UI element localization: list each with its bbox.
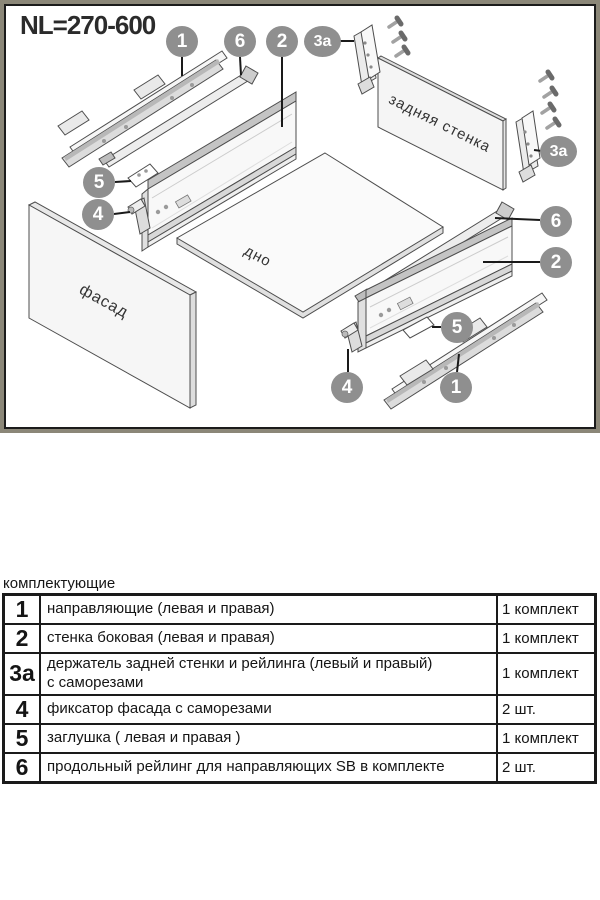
part-description: держатель задней стенки и рейлинга (левы…: [40, 653, 497, 695]
table-row: 4 фиксатор фасада с саморезами 2 шт.: [4, 695, 596, 724]
part-number: 5: [4, 724, 41, 753]
callout-4-left: 4: [82, 199, 114, 230]
components-table-caption: комплектующие: [3, 575, 115, 592]
assembly-diagram-frame: NL=270-600: [0, 0, 600, 433]
callout-6-right: 6: [540, 206, 572, 237]
callout-2-right: 2: [540, 247, 572, 278]
part-number: 4: [4, 695, 41, 724]
back-wall-panel: задняя стенка: [378, 56, 506, 190]
part-description: стенка боковая (левая и правая): [40, 624, 497, 653]
assembly-diagram: NL=270-600: [4, 4, 596, 429]
callout-5-right: 5: [441, 312, 473, 343]
table-row: 2 стенка боковая (левая и правая) 1 комп…: [4, 624, 596, 653]
part-quantity: 2 шт.: [497, 695, 596, 724]
part-quantity: 1 комплект: [497, 624, 596, 653]
page: NL=270-600: [0, 0, 600, 900]
part-number: 1: [4, 595, 41, 625]
part-quantity: 2 шт.: [497, 753, 596, 783]
nominal-length-title: NL=270-600: [20, 10, 155, 41]
table-row: 6 продольный рейлинг для направляющих SB…: [4, 753, 596, 783]
screws-right: [540, 72, 559, 128]
back-wall-holder-left: [354, 25, 380, 94]
screws-left: [389, 18, 408, 56]
part-description: заглушка ( левая и правая ): [40, 724, 497, 753]
part-quantity: 1 комплект: [497, 653, 596, 695]
callout-1-right: 1: [440, 372, 472, 403]
part-number: 3a: [4, 653, 41, 695]
table-row: 3a держатель задней стенки и рейлинга (л…: [4, 653, 596, 695]
components-table: 1 направляющие (левая и правая) 1 компле…: [2, 593, 597, 784]
callout-3a-right: 3a: [540, 136, 577, 167]
back-wall-holder-right: [516, 111, 540, 182]
part-description: фиксатор фасада с саморезами: [40, 695, 497, 724]
callout-4-right: 4: [331, 372, 363, 403]
part-number: 2: [4, 624, 41, 653]
part-quantity: 1 комплект: [497, 724, 596, 753]
part-number: 6: [4, 753, 41, 783]
callout-3a-top: 3a: [304, 26, 341, 57]
table-row: 5 заглушка ( левая и правая ) 1 комплект: [4, 724, 596, 753]
callout-6-top: 6: [224, 26, 256, 57]
table-row: 1 направляющие (левая и правая) 1 компле…: [4, 595, 596, 625]
part-quantity: 1 комплект: [497, 595, 596, 625]
callout-2-top: 2: [266, 26, 298, 57]
part-description: направляющие (левая и правая): [40, 595, 497, 625]
callout-5-left: 5: [83, 167, 115, 198]
callout-1-top: 1: [166, 26, 198, 57]
part-description: продольный рейлинг для направляющих SB в…: [40, 753, 497, 783]
